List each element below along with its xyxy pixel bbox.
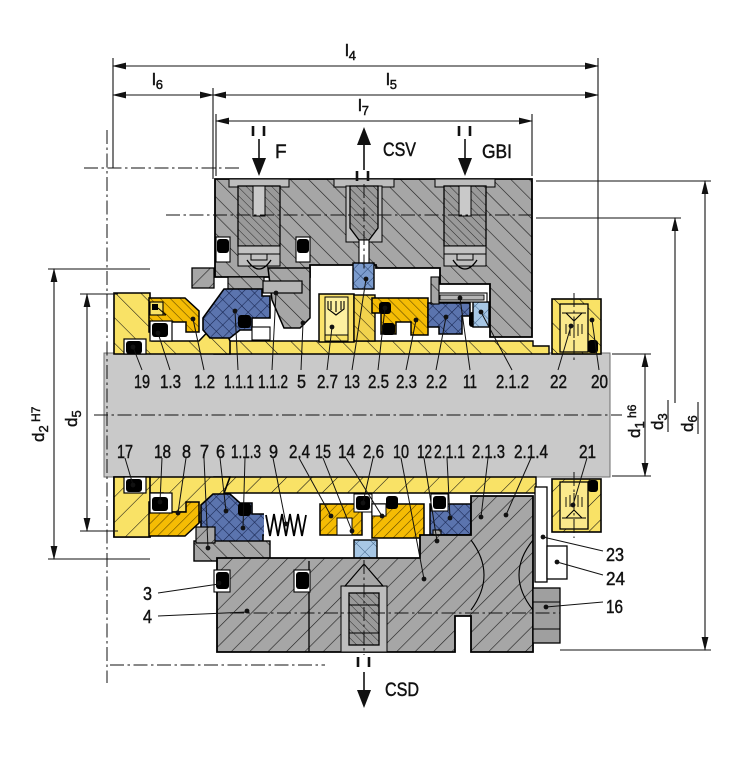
svg-text:1.3: 1.3: [160, 372, 181, 392]
svg-text:18: 18: [154, 442, 171, 462]
svg-text:2.5: 2.5: [368, 372, 389, 392]
svg-text:1.1.1: 1.1.1: [224, 372, 254, 392]
svg-text:7: 7: [200, 442, 209, 462]
svg-text:2.1.2: 2.1.2: [496, 372, 529, 392]
svg-text:2.1.3: 2.1.3: [472, 442, 505, 462]
svg-text:19: 19: [134, 372, 150, 392]
svg-text:1.1.3: 1.1.3: [231, 442, 261, 462]
svg-text:2.1.1: 2.1.1: [434, 442, 465, 462]
svg-text:CSD: CSD: [385, 680, 419, 701]
svg-text:20: 20: [591, 372, 608, 392]
svg-text:2.6: 2.6: [363, 442, 384, 462]
svg-text:9: 9: [269, 442, 278, 462]
svg-text:F: F: [275, 142, 287, 163]
svg-text:13: 13: [344, 372, 360, 392]
svg-text:1.1.2: 1.1.2: [258, 372, 288, 392]
svg-text:14: 14: [338, 442, 355, 462]
svg-text:23: 23: [606, 545, 624, 565]
svg-text:2.3: 2.3: [396, 372, 417, 392]
svg-text:21: 21: [579, 442, 596, 462]
svg-text:16: 16: [606, 597, 623, 617]
svg-text:2.1.4: 2.1.4: [514, 442, 548, 462]
svg-text:2.7: 2.7: [317, 372, 338, 392]
svg-text:8: 8: [182, 442, 191, 462]
svg-text:CSV: CSV: [383, 140, 416, 161]
svg-text:2.2: 2.2: [426, 372, 447, 392]
svg-text:5: 5: [297, 372, 306, 392]
svg-text:2.4: 2.4: [289, 442, 310, 462]
svg-text:GBI: GBI: [482, 142, 512, 163]
svg-text:4: 4: [143, 607, 152, 627]
svg-text:24: 24: [606, 569, 625, 589]
svg-text:10: 10: [393, 442, 409, 462]
svg-text:1.2: 1.2: [194, 372, 215, 392]
svg-text:15: 15: [315, 442, 331, 462]
svg-text:17: 17: [117, 442, 133, 462]
svg-text:12: 12: [417, 442, 432, 462]
svg-text:6: 6: [216, 442, 225, 462]
svg-text:3: 3: [143, 584, 152, 604]
svg-text:11: 11: [463, 372, 477, 392]
svg-text:22: 22: [550, 372, 567, 392]
